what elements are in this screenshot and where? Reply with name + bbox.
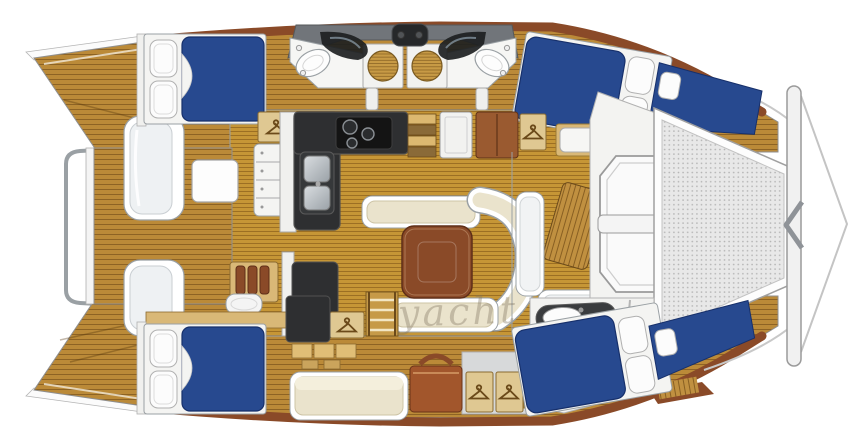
support-post [366, 88, 378, 110]
step-pad [560, 128, 594, 152]
companionway-ladder [366, 292, 398, 336]
sofa-back [295, 377, 403, 390]
floor-plan-canvas: yacht [0, 0, 850, 448]
pillow [654, 328, 678, 357]
bowsprit-lines [801, 96, 847, 352]
salon-wardrobe-aft [330, 312, 364, 338]
burner [362, 128, 374, 140]
support-post [476, 88, 488, 110]
faucet [316, 182, 321, 187]
cockpit-bench-top [124, 116, 184, 220]
wardrobe-1 [466, 372, 493, 412]
bench-cushion [520, 197, 540, 291]
wardrobe-2 [496, 372, 523, 412]
settee-cushion [367, 201, 475, 223]
mattress [182, 37, 264, 121]
cupholder [300, 70, 305, 75]
faucet [579, 308, 584, 313]
round-teak-table [368, 51, 398, 81]
cupholder [500, 70, 505, 75]
mattress [182, 327, 264, 411]
burner [343, 120, 357, 134]
salon-wardrobe-forward [520, 114, 546, 150]
cupholder [296, 45, 301, 50]
round-teak-table [412, 51, 442, 81]
sink [304, 156, 330, 182]
port-aft-cabin-bed [137, 34, 266, 126]
head-counter [286, 296, 330, 342]
watermark: yacht [395, 288, 519, 336]
cupholder [504, 45, 509, 50]
cockpit-table [192, 160, 238, 202]
dining-table [402, 226, 472, 298]
catamaran-floor-plan: yacht [0, 0, 850, 448]
mattress [514, 314, 627, 414]
pillow [657, 71, 681, 100]
burner [347, 138, 357, 148]
starboard-aft-cabin-bed [137, 312, 288, 414]
sink [304, 186, 330, 210]
